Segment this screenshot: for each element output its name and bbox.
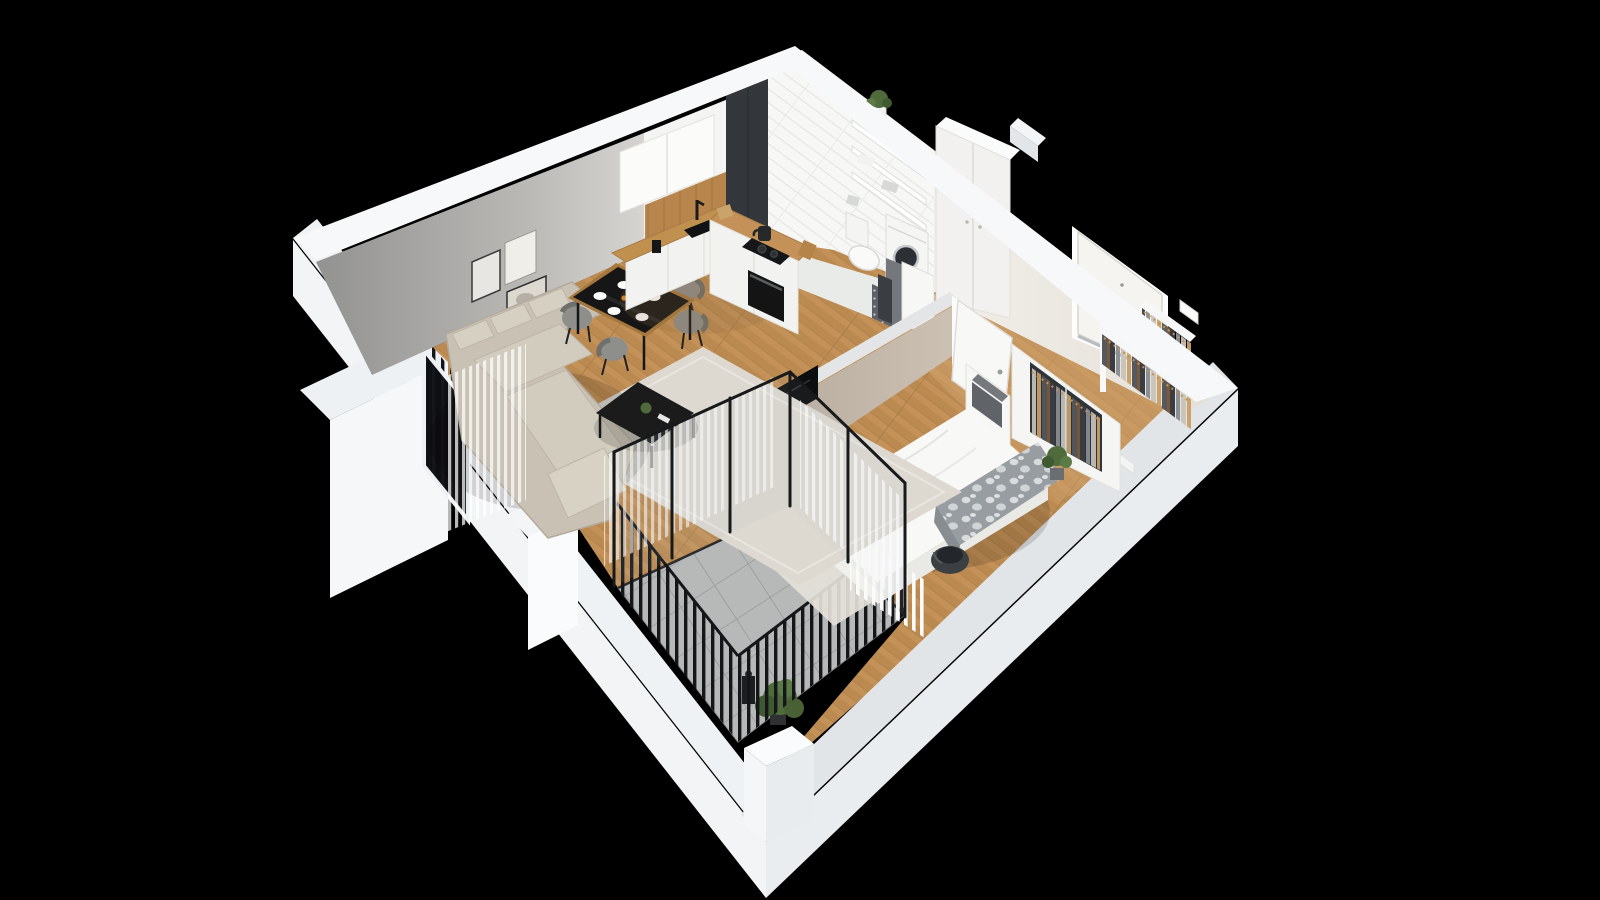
bed-pillow-1 xyxy=(806,492,852,524)
storage-box-2 xyxy=(972,424,1002,472)
partition-cap xyxy=(694,292,960,449)
bathroom-doorway-gap xyxy=(886,258,906,330)
kitchen-counters xyxy=(612,200,817,334)
bathroom-shelf-3 xyxy=(852,172,926,231)
cooktop-pot-2 xyxy=(771,251,778,258)
kitchen-sink xyxy=(684,218,722,238)
hall-tall-wardrobe xyxy=(936,117,1020,318)
wall-art-frame-1 xyxy=(472,250,500,302)
curtains xyxy=(446,344,910,614)
wardrobe-top xyxy=(936,117,1020,160)
table-flowers xyxy=(629,270,637,278)
balcony-lantern-top xyxy=(745,671,752,678)
bathroom-shelf-2 xyxy=(852,146,926,205)
bed-left-face xyxy=(798,512,878,604)
sofa-armrest xyxy=(548,448,626,518)
bathroom-door-panel xyxy=(902,262,934,338)
duvet-fold xyxy=(838,430,948,488)
rack-hanger-rail-1 xyxy=(1104,338,1190,402)
rack-hanger-rail-2 xyxy=(1036,390,1102,440)
oven-handle xyxy=(750,275,782,290)
kitchen-wood-backsplash xyxy=(645,171,728,268)
bathroom-floor-tile xyxy=(778,248,932,330)
balcony-door-track-left xyxy=(618,508,790,588)
rack-clothes-2 xyxy=(1034,386,1104,466)
bedroom xyxy=(760,408,1072,640)
living-room xyxy=(430,263,962,585)
black-background xyxy=(0,0,1600,900)
window-frame xyxy=(424,350,468,520)
table-setting xyxy=(594,270,661,321)
entrance-door-threshold xyxy=(1078,336,1162,374)
sofa-back-cushion-3 xyxy=(528,288,570,318)
table-orange-1 xyxy=(621,295,626,300)
balcony-railing-left-toprail xyxy=(616,502,738,656)
shower-column xyxy=(781,150,784,232)
left-block-top xyxy=(300,334,448,420)
living-back-wall xyxy=(316,133,644,375)
partition-wall xyxy=(694,292,960,525)
glass-pane-bedroom xyxy=(790,372,905,617)
counter-front-left xyxy=(626,214,736,310)
balcony-railing-left xyxy=(616,502,738,742)
wall-vent-block-front xyxy=(1010,126,1038,162)
curtain-living-balcony xyxy=(604,376,776,566)
mini-rack-hangers xyxy=(1144,312,1190,346)
bedroom-door-handle xyxy=(998,370,1003,375)
kitchen-floor-shadow xyxy=(620,266,780,334)
balcony-corner-pillar-right xyxy=(766,744,814,842)
rack-board-1 xyxy=(1098,322,1196,396)
closet-open-section xyxy=(1030,362,1102,472)
tv-screen xyxy=(740,365,818,443)
table-vase xyxy=(628,280,634,293)
counter-books xyxy=(716,204,733,220)
bedroom-door-open-panel xyxy=(952,300,1012,418)
sofa-shadow xyxy=(430,370,650,510)
bathroom xyxy=(768,50,934,330)
moka-pot xyxy=(652,240,661,253)
bedroom-plant xyxy=(1042,446,1072,480)
gray-wall-face xyxy=(316,133,644,375)
window-opening-glass xyxy=(424,350,468,520)
wall-cap-northeast xyxy=(786,46,1238,402)
closet-clothes xyxy=(1032,368,1100,470)
area-rug xyxy=(540,347,962,585)
washer-panel-line xyxy=(888,226,926,243)
bathroom-dark-tile-corner xyxy=(878,274,892,324)
kitchen-back-wall xyxy=(620,72,795,268)
floorplan-scene xyxy=(0,0,1600,900)
corner-sofa-body xyxy=(446,282,636,538)
balcony-pillar-front xyxy=(528,512,578,650)
balcony-lantern xyxy=(742,676,755,704)
kitchen-faucet-spout xyxy=(697,201,704,205)
shower-head xyxy=(777,144,785,152)
exterior-walls xyxy=(293,240,1238,898)
kitchen-wall-face xyxy=(644,72,795,252)
laundry-basket xyxy=(872,284,898,330)
washing-machine xyxy=(886,214,928,298)
balcony-pillar-top xyxy=(506,491,578,537)
peninsula-front xyxy=(710,220,798,334)
dining-chair-4 xyxy=(674,310,706,349)
dining-table-wood-rim xyxy=(568,263,695,337)
living-room-window xyxy=(424,336,468,520)
partition-face xyxy=(702,303,958,525)
dark-tile-face xyxy=(726,60,838,250)
sofa-seat-cushion-1 xyxy=(474,324,592,392)
coffee-table xyxy=(594,382,698,468)
mini-rack-board xyxy=(1140,300,1196,342)
rack-board-2 xyxy=(1030,376,1110,436)
balcony-railing-right xyxy=(738,529,905,742)
cooktop xyxy=(742,238,790,265)
toilet-tank xyxy=(846,212,868,248)
dining-chair-1 xyxy=(562,304,592,344)
bathroom-tile-wall xyxy=(768,50,934,292)
toilet xyxy=(845,194,883,275)
washer-door-ring xyxy=(894,246,918,270)
sofa-back-cushion-2 xyxy=(490,304,532,334)
duvet-fold-2 xyxy=(852,448,976,516)
toilet-flush-plate xyxy=(846,194,860,206)
floors xyxy=(372,196,1192,788)
hall-small-shelf xyxy=(1180,300,1198,324)
rack-side-panel-2 xyxy=(1030,378,1036,444)
bathroom-plant xyxy=(866,90,892,117)
left-block-front xyxy=(330,362,448,598)
bathroom-towel-2 xyxy=(881,180,899,194)
tv-reflection xyxy=(748,380,810,416)
entrance-door-frame xyxy=(1072,226,1168,378)
closet-frame xyxy=(1012,344,1120,492)
rack-clothes-1 xyxy=(1102,334,1192,430)
wall-art-frame-2 xyxy=(505,230,536,285)
bed-pillow-2 xyxy=(820,478,864,508)
entrance-door-peephole xyxy=(1120,283,1124,287)
bathroom-towel-1 xyxy=(857,154,875,168)
rack-side-panel-1 xyxy=(1100,322,1106,392)
wall-cap-southwest xyxy=(293,219,790,840)
sofa-chaise-cushion xyxy=(506,370,622,478)
hall-mini-coat-rack xyxy=(1140,300,1196,372)
balcony-corner-pillar-left xyxy=(744,748,766,842)
shower-dark-wall xyxy=(726,60,838,250)
dark-wall-cap xyxy=(726,60,808,89)
bed-blanket xyxy=(936,442,1062,545)
wood-floor xyxy=(372,196,1192,788)
bed-mattress-top xyxy=(798,408,1048,582)
balcony-railing-right-toprail xyxy=(738,529,905,656)
entrance-door xyxy=(1078,232,1162,372)
entrance-door-handle xyxy=(1085,289,1091,295)
kitchen-upper-cabinets xyxy=(620,115,714,213)
wall-vent-block-top xyxy=(1010,118,1046,146)
wardrobe-handle-2 xyxy=(978,225,982,229)
table-orange-2 xyxy=(626,298,631,303)
balcony-glass-walls xyxy=(614,372,905,617)
bedroom-door-frame xyxy=(952,296,968,374)
balcony-door-track-right xyxy=(790,508,905,615)
exterior-wall-southwest-face xyxy=(293,240,766,898)
washer-body xyxy=(886,214,928,298)
coffee-table-plant xyxy=(641,403,652,414)
bedroom-radiator xyxy=(850,532,928,640)
bedroom-storage xyxy=(966,344,1120,492)
coffee-table-shadow xyxy=(594,404,698,452)
bedroom-planter xyxy=(931,546,969,574)
hall-clothes-racks xyxy=(1030,322,1196,474)
dining-set xyxy=(562,263,706,375)
cutting-boards xyxy=(797,240,816,260)
toilet-bowl xyxy=(845,241,883,275)
closet-hanger-rail xyxy=(1032,372,1100,421)
bathroom-door xyxy=(878,258,934,338)
dining-table-top xyxy=(573,267,689,333)
curtain-bedroom-balcony xyxy=(800,400,910,614)
bed-blanket-drape xyxy=(934,505,960,562)
hall-floor-highlight xyxy=(918,292,1190,502)
storage-box-top xyxy=(972,374,1008,402)
kettle xyxy=(754,226,771,241)
exterior-left-blocks xyxy=(300,334,578,650)
dining-chair-3 xyxy=(669,277,703,316)
wardrobe-front xyxy=(936,126,1010,318)
balcony-plant xyxy=(755,679,804,725)
balcony-corner-pillar-top xyxy=(744,726,814,766)
wall-art-frame-3 xyxy=(507,276,546,338)
glass-header-bedroom xyxy=(790,372,905,483)
wall-cap-southeast xyxy=(741,362,1238,840)
bathroom-shelf-1 xyxy=(852,120,926,179)
sofa-back-cushion-1 xyxy=(452,320,494,350)
storage-box-1 xyxy=(972,382,1002,428)
oven-front xyxy=(748,270,784,322)
wall-cap-northwest xyxy=(293,46,795,260)
hall-shoe-shelf xyxy=(1078,424,1134,474)
glass-pane-living xyxy=(614,372,790,586)
coffee-table-top xyxy=(596,382,694,444)
table-candle xyxy=(643,283,647,292)
entry-wall xyxy=(934,118,1210,416)
bed-shadow xyxy=(790,452,1050,572)
balcony xyxy=(616,502,905,842)
balcony-tile-floor xyxy=(618,508,905,742)
shelf-unit xyxy=(966,364,1010,468)
entry-wall-face xyxy=(934,150,1210,416)
entrance-door-handle-lever xyxy=(1088,292,1097,298)
bedroom-rug xyxy=(760,498,930,626)
washer-door xyxy=(894,246,918,270)
dining-table-gloss xyxy=(600,294,660,322)
cooktop-pot-1 xyxy=(758,245,766,253)
glass-header-living xyxy=(614,372,790,452)
counter-top-left xyxy=(612,206,736,262)
coffee-table-remote xyxy=(657,413,670,423)
exterior-wall-southeast-face xyxy=(766,390,1238,898)
bed-front-face xyxy=(878,478,1048,604)
area-rug-border xyxy=(554,357,944,573)
mini-rack-clothes xyxy=(1142,308,1192,372)
wall-art-smudge xyxy=(516,293,536,307)
curtain-living-window xyxy=(446,344,526,532)
window-railing xyxy=(424,336,468,520)
dining-chair-2 xyxy=(598,337,628,375)
bedroom-door xyxy=(952,296,1012,418)
wardrobe-handle-1 xyxy=(965,220,969,224)
shower-glass-edge xyxy=(836,168,838,246)
counter-top-peninsula xyxy=(710,207,812,261)
